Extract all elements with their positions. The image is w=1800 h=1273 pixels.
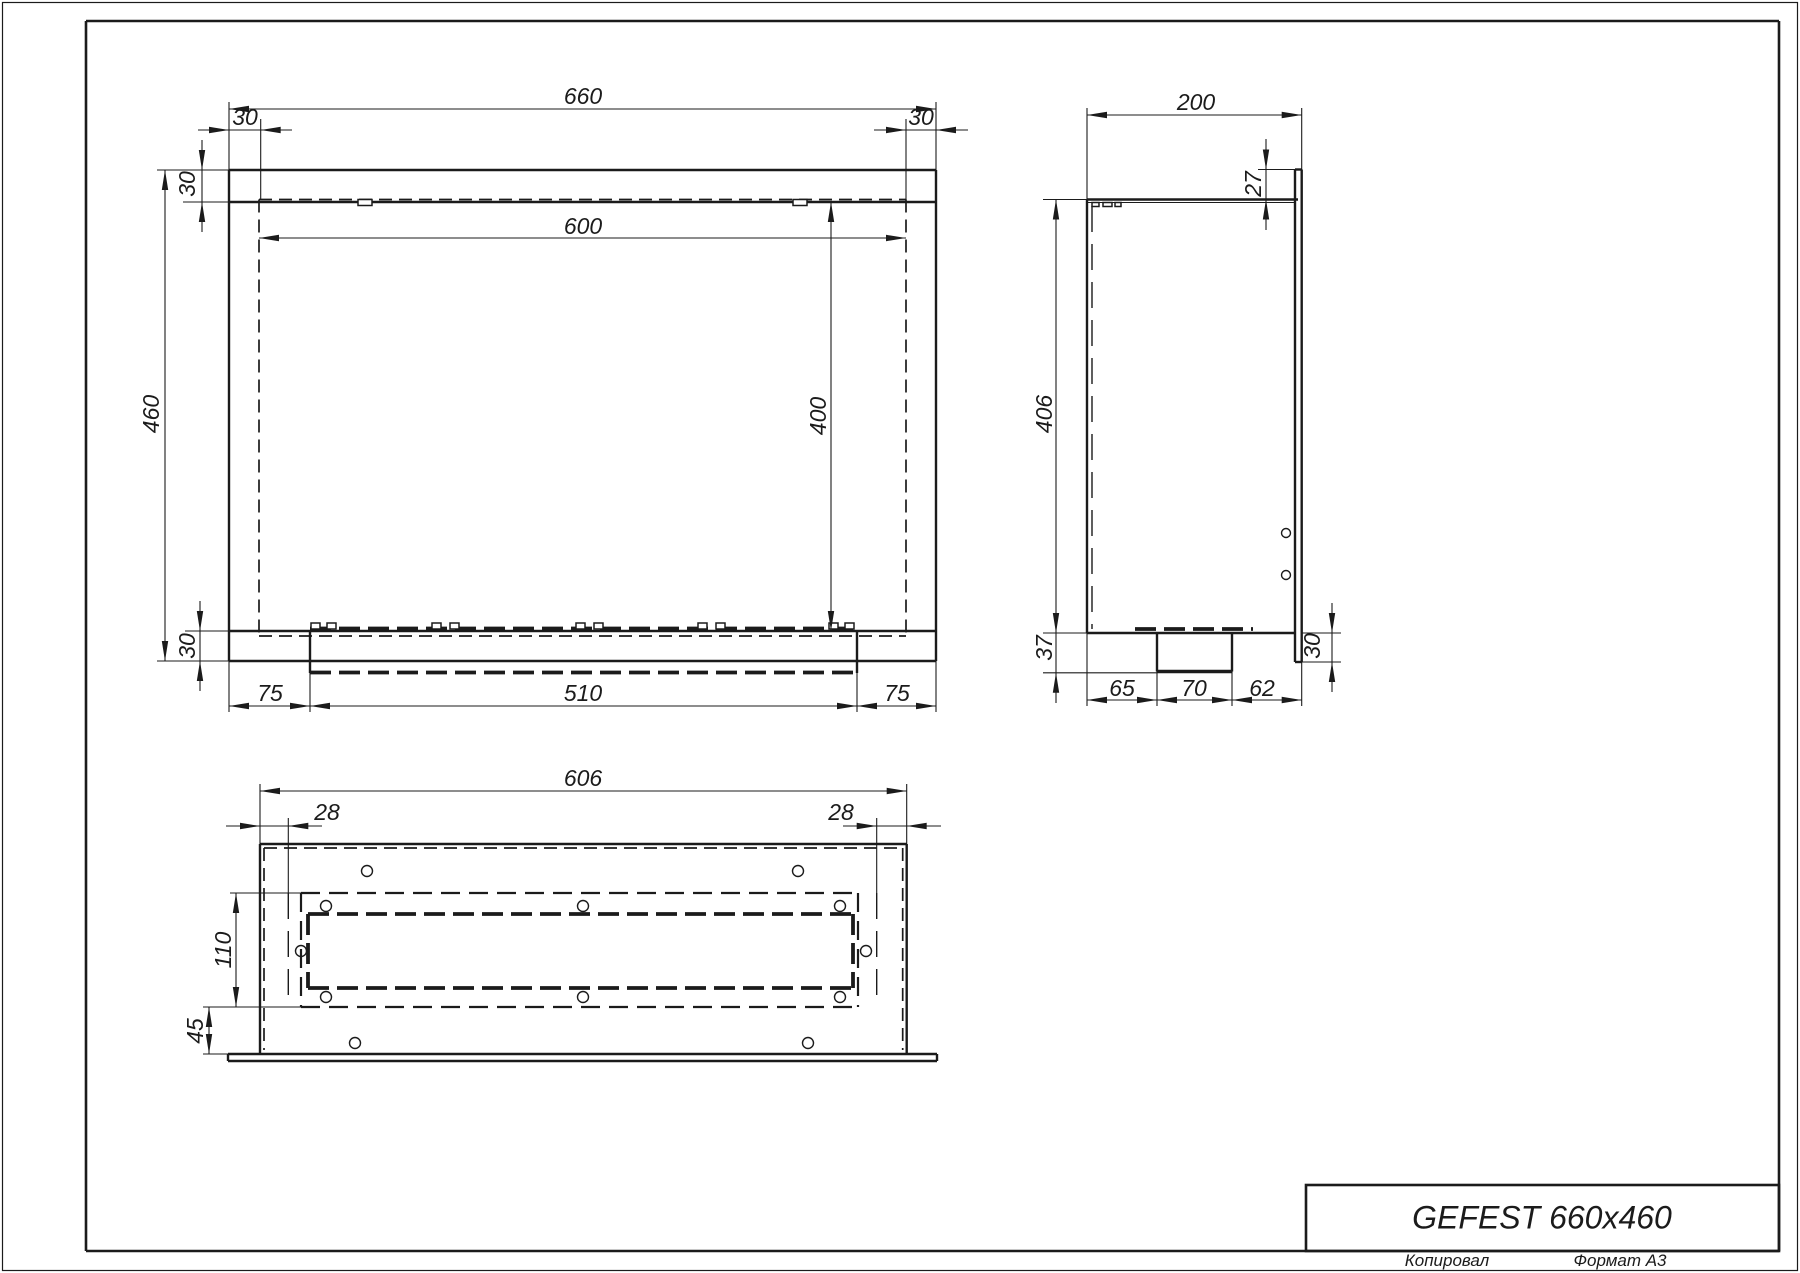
dimension-arrow bbox=[1263, 150, 1269, 170]
dimension-arrow bbox=[199, 150, 205, 170]
mounting-hole bbox=[835, 992, 846, 1003]
dimension-label: 28 bbox=[313, 799, 340, 825]
mounting-hole bbox=[362, 866, 373, 877]
dimension-label: 65 bbox=[1109, 675, 1135, 701]
dimension-label: 606 bbox=[564, 765, 603, 791]
dimension-label: 30 bbox=[1299, 633, 1325, 659]
drawing-sheet: 6603030304606004003075510752002740637306… bbox=[0, 0, 1800, 1273]
dimension-arrow bbox=[1087, 697, 1107, 703]
dimension-label: 406 bbox=[1031, 395, 1057, 434]
dimension-label: 460 bbox=[138, 395, 164, 434]
dimension-arrow bbox=[1329, 613, 1335, 633]
weld-tab bbox=[358, 200, 372, 206]
weld-tab bbox=[327, 623, 336, 629]
dimension-arrow bbox=[936, 127, 956, 133]
dimension-arrow bbox=[857, 823, 877, 829]
mounting-hole bbox=[578, 992, 589, 1003]
dimension-label: 30 bbox=[232, 104, 258, 130]
dimension-arrow bbox=[886, 127, 906, 133]
mounting-hole bbox=[350, 1038, 361, 1049]
dimension-arrow bbox=[197, 661, 203, 681]
dimension-label: 30 bbox=[908, 104, 934, 130]
dimension-label: 70 bbox=[1181, 675, 1207, 701]
dimension-arrow bbox=[310, 703, 330, 709]
dimension-arrow bbox=[197, 611, 203, 631]
dimension-arrow bbox=[233, 987, 239, 1007]
dimension-label: 510 bbox=[564, 680, 603, 706]
dimension-arrow bbox=[1212, 697, 1232, 703]
weld-tab bbox=[432, 623, 441, 629]
weld-tab bbox=[576, 623, 585, 629]
copied-label: Копировал bbox=[1405, 1251, 1490, 1271]
dimension-label: 27 bbox=[1240, 170, 1266, 198]
dimension-label: 62 bbox=[1249, 675, 1275, 701]
dimension-arrow bbox=[887, 788, 907, 794]
dimension-label: 110 bbox=[210, 931, 236, 968]
weld-tab bbox=[311, 623, 320, 629]
dimension-arrow bbox=[1282, 697, 1302, 703]
dimension-arrow bbox=[907, 823, 927, 829]
dimension-arrow bbox=[209, 127, 229, 133]
dimension-arrow bbox=[857, 703, 877, 709]
dimension-arrow bbox=[1329, 662, 1335, 682]
drawing-canvas: 6603030304606004003075510752002740637306… bbox=[0, 0, 1800, 1273]
dimension-arrow bbox=[261, 127, 281, 133]
mounting-hole bbox=[861, 946, 872, 957]
dimension-label: 30 bbox=[174, 633, 200, 659]
mounting-hole bbox=[835, 901, 846, 912]
weld-tab bbox=[845, 623, 854, 629]
weld-tab bbox=[716, 623, 725, 629]
dimension-arrow bbox=[240, 823, 260, 829]
dimension-label: 37 bbox=[1031, 634, 1057, 661]
drawing-title: GEFEST 660x460 bbox=[1412, 1200, 1672, 1237]
dimension-label: 400 bbox=[805, 397, 831, 436]
dimension-arrow bbox=[1053, 200, 1059, 220]
dimension-arrow bbox=[233, 893, 239, 913]
mounting-hole bbox=[321, 992, 332, 1003]
mounting-hole bbox=[1282, 571, 1291, 580]
weld-tab bbox=[450, 623, 459, 629]
weld-tab bbox=[594, 623, 603, 629]
dimension-arrow bbox=[1053, 673, 1059, 693]
dimension-arrow bbox=[260, 788, 280, 794]
mounting-hole bbox=[578, 901, 589, 912]
mounting-hole bbox=[803, 1038, 814, 1049]
dimension-label: 660 bbox=[564, 83, 603, 109]
weld-tab bbox=[1092, 203, 1099, 207]
dimension-arrow bbox=[1087, 112, 1107, 118]
weld-tab bbox=[793, 200, 807, 206]
dimension-label: 200 bbox=[1176, 89, 1216, 115]
dimension-arrow bbox=[199, 202, 205, 222]
dimension-arrow bbox=[886, 235, 906, 241]
dimension-arrow bbox=[916, 703, 936, 709]
weld-tab bbox=[698, 623, 707, 629]
dimension-label: 28 bbox=[827, 799, 854, 825]
dimension-arrow bbox=[162, 170, 168, 190]
dimension-arrow bbox=[229, 703, 249, 709]
dimension-label: 45 bbox=[182, 1018, 208, 1044]
weld-tab bbox=[1103, 203, 1112, 207]
mounting-hole bbox=[1282, 529, 1291, 538]
dimension-arrow bbox=[1053, 613, 1059, 633]
dimension-arrow bbox=[1157, 697, 1177, 703]
format-label: Формат А3 bbox=[1573, 1251, 1666, 1271]
dimension-label: 75 bbox=[884, 680, 910, 706]
dimension-arrow bbox=[162, 641, 168, 661]
dimension-label: 75 bbox=[257, 680, 283, 706]
dimension-arrow bbox=[259, 235, 279, 241]
mounting-hole bbox=[321, 901, 332, 912]
dimension-arrow bbox=[837, 703, 857, 709]
dimension-arrow bbox=[828, 202, 834, 222]
dimension-arrow bbox=[290, 703, 310, 709]
dimension-arrow bbox=[1137, 697, 1157, 703]
dimension-label: 600 bbox=[564, 213, 603, 239]
weld-tab bbox=[1115, 203, 1121, 207]
dimension-arrow bbox=[1282, 112, 1302, 118]
dimension-arrow bbox=[288, 823, 308, 829]
mounting-hole bbox=[793, 866, 804, 877]
dimension-label: 30 bbox=[174, 171, 200, 197]
